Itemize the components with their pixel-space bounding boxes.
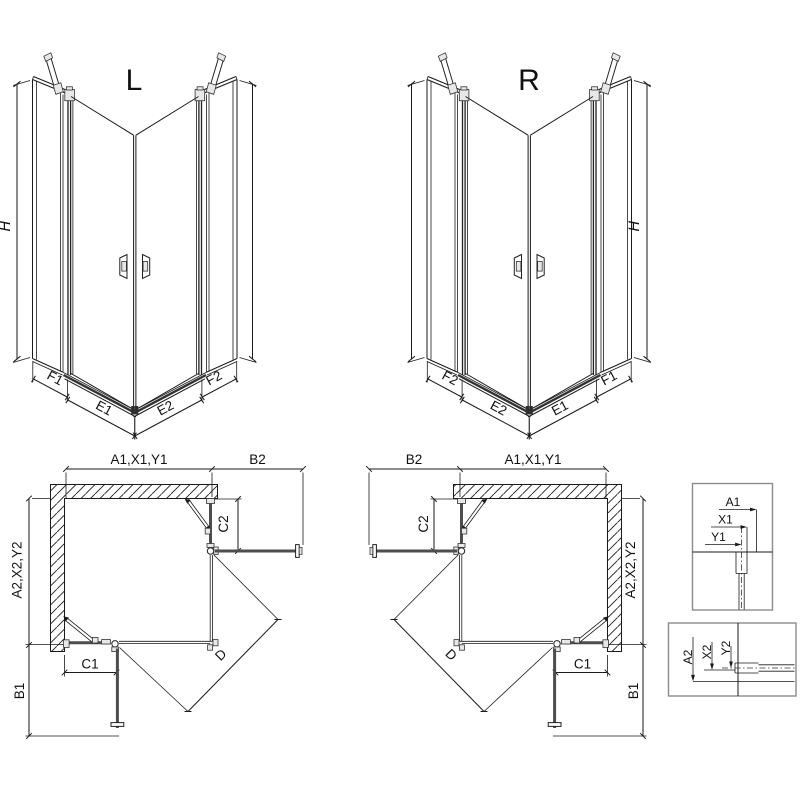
dim-label-b2-plan-r: B2 xyxy=(406,452,423,467)
dim-label-h-r: H xyxy=(627,220,643,231)
detail-box-top: A1 X1 Y1 xyxy=(693,484,773,611)
detail-label-a2: A2 xyxy=(681,649,695,664)
detail-box-bottom: A2 X2 Y2 xyxy=(669,623,797,696)
detail-label-a1: A1 xyxy=(726,495,741,509)
dim-label-c1-plan-l: C1 xyxy=(81,657,98,672)
dim-label-c2-plan-l: C2 xyxy=(216,515,231,532)
view-label-l: L xyxy=(126,64,143,97)
dim-label-h-l: H xyxy=(0,220,14,231)
detail-label-x1: X1 xyxy=(718,513,733,527)
dim-label-a2-plan-r: A2,X2,Y2 xyxy=(623,541,638,598)
dim-label-b2-plan-l: B2 xyxy=(249,452,266,467)
dim-label-c2-plan-r: C2 xyxy=(416,515,431,532)
dim-label-a2-plan-l: A2,X2,Y2 xyxy=(10,541,25,598)
technical-drawing: L H F1 E1 E2 F2 R H F2 E2 E1 F1 A1,X1,Y1… xyxy=(0,0,800,800)
dim-label-a1-plan-r: A1,X1,Y1 xyxy=(504,452,561,467)
view-label-r: R xyxy=(518,64,540,97)
dim-label-a1-plan-l: A1,X1,Y1 xyxy=(110,452,167,467)
detail-label-y1: Y1 xyxy=(711,530,726,544)
detail-label-y2: Y2 xyxy=(719,640,733,655)
dim-label-c1-plan-r: C1 xyxy=(574,657,591,672)
detail-label-x2: X2 xyxy=(700,644,714,659)
dim-label-b1-plan-r: B1 xyxy=(626,683,641,700)
dim-label-b1-plan-l: B1 xyxy=(12,683,27,700)
drawing-canvas: L H F1 E1 E2 F2 R H F2 E2 E1 F1 A1,X1,Y1… xyxy=(0,0,800,800)
